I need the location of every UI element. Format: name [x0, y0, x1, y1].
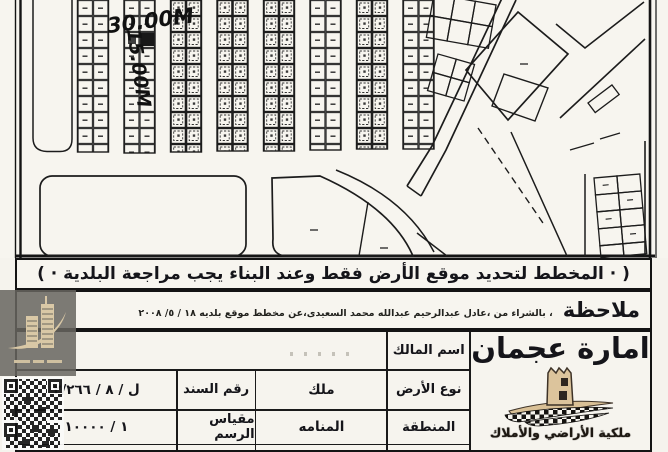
plot-map: 30.00M 15.00M	[0, 0, 668, 258]
land-info-table: امارة عجمان ملكية الأراضي والأملاك	[15, 330, 652, 452]
table-row-cut	[256, 445, 386, 452]
note-text: ، بالشراء من ،عادل عبدالرحيم عبدالله محم…	[138, 302, 552, 319]
emblem-cell: امارة عجمان ملكية الأراضي والأملاك	[471, 332, 650, 452]
emirate-title: امارة عجمان	[471, 332, 650, 365]
scale-label: مقياس الرسم	[178, 411, 255, 444]
qr-code	[2, 377, 64, 450]
note-label: ملاحظة	[563, 298, 640, 322]
fort-icon	[496, 365, 626, 427]
department-name: ملكية الأراضي والأملاك	[490, 425, 631, 440]
disclaimer-text: ( · المخطط لتحديد موقع الأرض فقط وعند ال…	[37, 264, 630, 284]
area-value: المنامه	[256, 411, 386, 444]
scanned-site-plan-document: 30.00M 15.00M	[0, 0, 668, 452]
table-row-cut	[178, 445, 255, 452]
table-row-cut	[388, 445, 469, 452]
land-type-value: ملك	[256, 371, 386, 409]
watermark-logo	[0, 290, 76, 376]
deed-number-label: رقم السند	[178, 371, 255, 409]
owner-label: اسم المالك	[388, 332, 469, 369]
note-bar: ملاحظة ، بالشراء من ،عادل عبدالرحيم عبدا…	[15, 290, 652, 330]
building-icon	[0, 290, 76, 376]
pencil-smudge	[290, 352, 360, 356]
disclaimer-bar: ( · المخطط لتحديد موقع الأرض فقط وعند ال…	[15, 258, 652, 290]
land-type-label: نوع الأرض	[388, 371, 469, 409]
area-label: المنطقة	[388, 411, 469, 444]
